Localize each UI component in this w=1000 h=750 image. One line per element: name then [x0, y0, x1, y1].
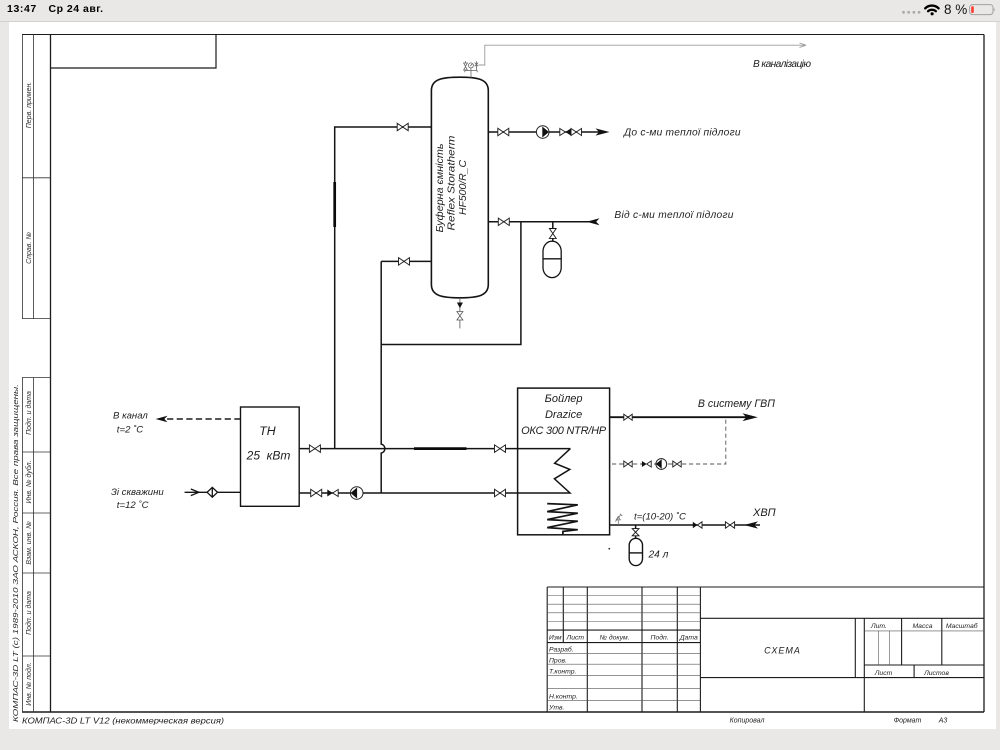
- svg-text:Инв. № дубл.: Инв. № дубл.: [25, 460, 33, 503]
- svg-text:ТН: ТН: [259, 424, 276, 438]
- svg-text:Лит.: Лит.: [870, 623, 887, 630]
- svg-text:Изм: Изм: [549, 634, 562, 641]
- svg-text:Лист: Лист: [566, 634, 585, 641]
- svg-text:ХВП: ХВП: [752, 507, 776, 519]
- svg-text:t=12 ˚С: t=12 ˚С: [117, 500, 149, 511]
- svg-text:Инв. № подл.: Инв. № подл.: [25, 662, 33, 705]
- svg-text:До с-ми теплої підлоги: До с-ми теплої підлоги: [623, 128, 741, 139]
- svg-text:Взам. инв. №: Взам. инв. №: [26, 521, 33, 565]
- svg-text:Т.контр.: Т.контр.: [549, 669, 577, 676]
- svg-text:Листов: Листов: [923, 670, 949, 677]
- svg-text:Від с-ми теплої підлоги: Від с-ми теплої підлоги: [614, 210, 733, 221]
- svg-text:Подп.: Подп.: [651, 633, 669, 641]
- svg-text:Пров.: Пров.: [549, 657, 567, 664]
- svg-text:Зі скважини: Зі скважини: [111, 487, 164, 498]
- svg-text:Утв.: Утв.: [548, 705, 565, 712]
- svg-text:Копировал: Копировал: [730, 718, 765, 725]
- svg-text:Подп. и дата: Подп. и дата: [25, 391, 33, 435]
- svg-text:Буферна ємність: Буферна ємність: [434, 144, 446, 233]
- svg-text:В систему ГВП: В систему ГВП: [698, 398, 775, 410]
- svg-text:25 кВт: 25 кВт: [246, 448, 291, 462]
- svg-text:Drazice: Drazice: [545, 409, 582, 421]
- svg-text:ОКС 300 NTR/HP: ОКС 300 NTR/HP: [521, 425, 607, 437]
- svg-text:Формат: Формат: [894, 718, 922, 725]
- svg-text:В канал: В канал: [113, 411, 148, 422]
- svg-text:Справ. №: Справ. №: [26, 232, 33, 264]
- svg-text:Подп. и дата: Подп. и дата: [25, 591, 33, 635]
- svg-text:В каналізацію: В каналізацію: [753, 59, 811, 70]
- svg-text:HF500/R_C: HF500/R_C: [458, 159, 469, 215]
- svg-text:Reflex Storatherm: Reflex Storatherm: [446, 135, 457, 231]
- svg-text:Лист: Лист: [874, 670, 893, 677]
- svg-text:Масса: Масса: [912, 623, 932, 630]
- svg-text:Масштаб: Масштаб: [946, 622, 979, 630]
- svg-text:Перв. примен.: Перв. примен.: [26, 82, 33, 129]
- svg-text:А3: А3: [938, 718, 948, 725]
- svg-text:24 л: 24 л: [648, 550, 669, 561]
- svg-text:t=(10-20) ˚С: t=(10-20) ˚С: [634, 511, 686, 522]
- svg-text:t=2 ˚С: t=2 ˚С: [117, 425, 143, 436]
- svg-text:Н.контр.: Н.контр.: [549, 693, 578, 700]
- svg-text:№ докум.: № докум.: [600, 633, 630, 641]
- svg-text:КОМПАС-3D LT (с) 1989-2010 ЗАО: КОМПАС-3D LT (с) 1989-2010 ЗАО АСКОН, Ро…: [11, 384, 20, 722]
- svg-text:СХЕМА: СХЕМА: [764, 646, 801, 656]
- svg-text:КОМПАС-3D LT V12 (некоммерческ: КОМПАС-3D LT V12 (некоммерческая версия): [22, 717, 224, 726]
- svg-text:Разраб.: Разраб.: [549, 646, 574, 654]
- svg-text:Бойлер: Бойлер: [545, 393, 583, 405]
- svg-text:Дата: Дата: [679, 634, 698, 641]
